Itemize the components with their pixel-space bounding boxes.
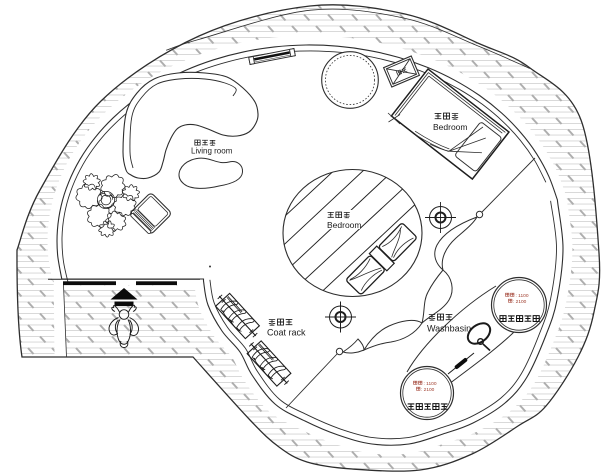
svg-text:Bedroom: Bedroom: [327, 220, 362, 230]
svg-text:: 2100: : 2100: [513, 299, 527, 305]
svg-text:: 2100: : 2100: [421, 387, 435, 393]
svg-text:: 1100: : 1100: [516, 293, 529, 299]
svg-text:Coat rack: Coat rack: [267, 328, 306, 338]
svg-text:: 1100: : 1100: [424, 381, 437, 387]
svg-text:Washbasin: Washbasin: [427, 324, 471, 334]
svg-text:Living room: Living room: [191, 147, 233, 156]
svg-text:Bedroom: Bedroom: [433, 122, 468, 132]
